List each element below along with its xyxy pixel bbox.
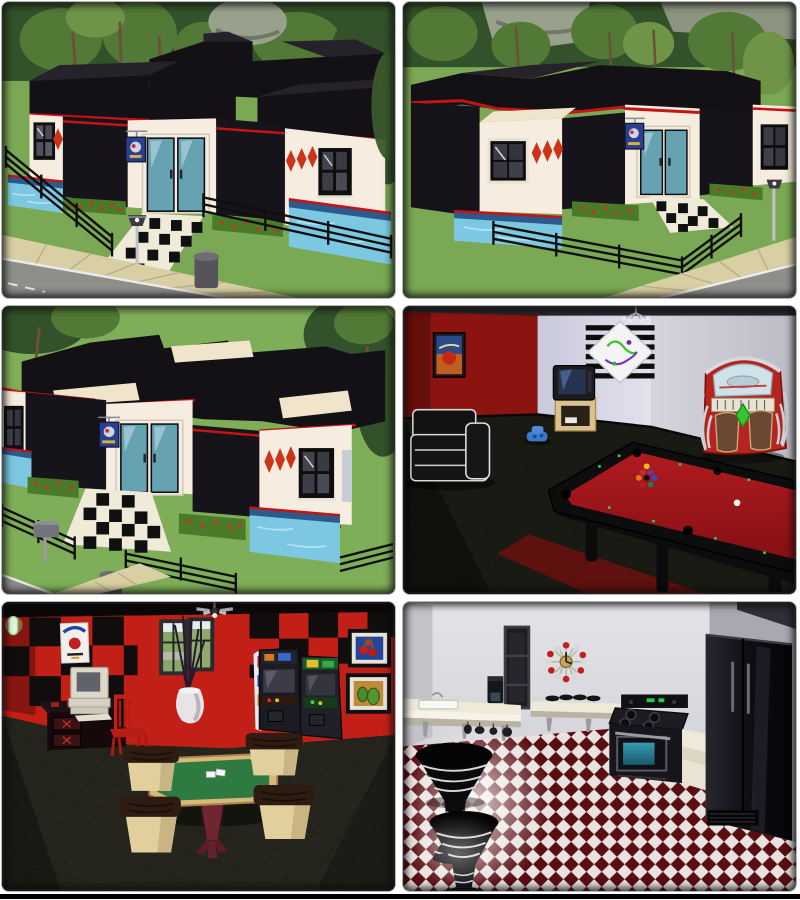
fridge bbox=[706, 635, 792, 841]
hanging-sign bbox=[625, 118, 645, 149]
panel-billiards-room bbox=[403, 306, 796, 594]
entry-doors bbox=[637, 126, 690, 197]
window bbox=[505, 627, 529, 708]
entry-doors bbox=[116, 420, 183, 495]
jukebox bbox=[700, 358, 788, 463]
desktop-computer bbox=[69, 668, 112, 722]
arcade-cabinet-2 bbox=[301, 656, 342, 739]
pool-left-sliver bbox=[2, 448, 31, 488]
hanging-sign bbox=[98, 417, 120, 447]
panel-exterior-front-close bbox=[2, 306, 395, 594]
tv-on-stand bbox=[553, 366, 602, 431]
window-right bbox=[316, 148, 353, 198]
window-far-right bbox=[761, 124, 789, 169]
wall-painting bbox=[433, 333, 464, 377]
entry-doors bbox=[142, 134, 209, 213]
screenshot-page: { "window": { "width": 800, "height": 90… bbox=[0, 0, 800, 900]
stove bbox=[609, 694, 688, 783]
painting-cherries bbox=[348, 629, 391, 668]
cue-ball bbox=[734, 500, 741, 507]
panel-exterior-front bbox=[2, 2, 395, 298]
arcade-cabinet-1 bbox=[254, 648, 301, 733]
bottom-border-bar bbox=[0, 894, 800, 899]
window-right-wing bbox=[297, 448, 336, 501]
wall-poster bbox=[60, 623, 89, 663]
panel-poker-room bbox=[2, 602, 395, 891]
window-left-wing bbox=[487, 138, 528, 183]
window-left bbox=[33, 122, 55, 159]
coffee-maker bbox=[487, 676, 503, 703]
painting-pears bbox=[346, 673, 391, 713]
panel-exterior-corner bbox=[403, 2, 796, 298]
panel-kitchen bbox=[403, 602, 796, 891]
trash-can bbox=[194, 251, 220, 288]
